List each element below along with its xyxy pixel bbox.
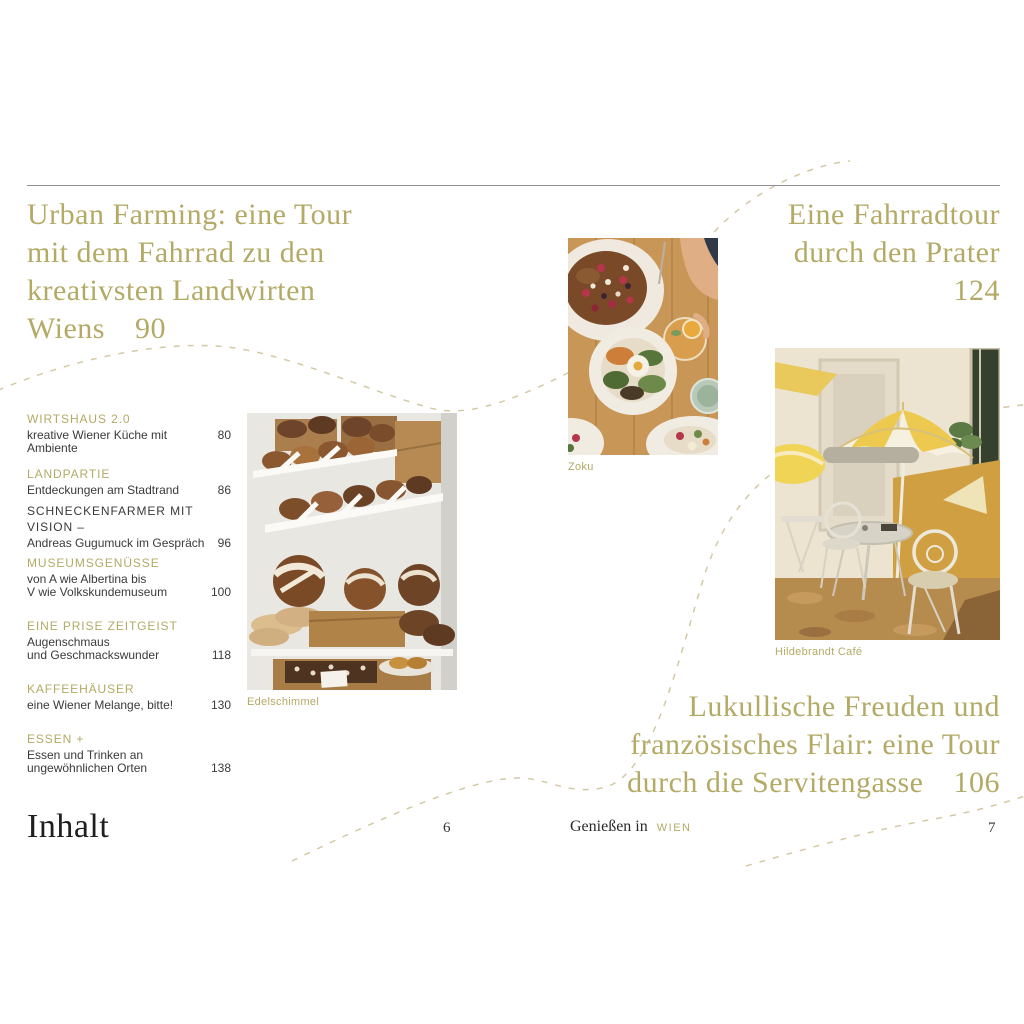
toc-entry: LANDPARTIEEntdeckungen am Stadtrand86	[27, 466, 231, 497]
headline-servitengasse: Lukullische Freuden undfranzösisches Fla…	[627, 688, 1000, 802]
headline-line: durch die Servitengasse106	[627, 764, 1000, 802]
toc-page-number: 86	[218, 484, 231, 497]
headline-page-number: 106	[954, 766, 1001, 799]
flourish-bottom-curve	[746, 791, 1024, 866]
cafe-terrace-image	[775, 348, 1000, 640]
toc-entry-title: ESSEN +	[27, 731, 231, 747]
toc-entry: SCHNECKENFARMER MIT VISION –Andreas Gugu…	[27, 503, 231, 550]
running-title-text: Genießen in	[570, 818, 648, 836]
toc-entry-line: Andreas Gugumuck im Gespräch96	[27, 537, 231, 550]
toc-entry-line: kreative Wiener Küche mit Ambiente80	[27, 429, 231, 455]
toc-entry-title: MUSEUMSGENÜSSE	[27, 555, 231, 571]
running-title: Genießen in WIEN	[570, 818, 691, 836]
headline-line: Eine Fahrradtour	[788, 196, 1000, 234]
headline-fahrradtour-prater: Eine Fahrradtourdurch den Prater124	[788, 196, 1000, 310]
caption-hildebrandt: Hildebrandt Café	[775, 646, 1000, 658]
toc-page-number: 118	[212, 649, 231, 662]
toc-entry-title: WIRTSHAUS 2.0	[27, 411, 231, 427]
toc-page-number: 96	[218, 537, 231, 550]
toc-entry-title: EINE PRISE ZEITGEIST	[27, 618, 231, 634]
caption-edelschimmel: Edelschimmel	[247, 696, 457, 708]
bakery-shelves-image	[247, 413, 457, 690]
toc-page-number: 130	[211, 699, 231, 712]
toc-entry-line: und Geschmackswunder118	[27, 649, 231, 662]
toc-entry: MUSEUMSGENÜSSEvon A wie Albertina bisV w…	[27, 555, 231, 599]
page-number-right: 7	[988, 820, 996, 837]
headline-line: durch den Prater	[788, 234, 1000, 272]
toc-entry-title: LANDPARTIE	[27, 466, 231, 482]
toc-entry: ESSEN +Essen und Trinken anungewöhnliche…	[27, 731, 231, 775]
toc-list: WIRTSHAUS 2.0kreative Wiener Küche mit A…	[27, 0, 231, 1024]
toc-entry-line: Entdeckungen am Stadtrand86	[27, 484, 231, 497]
toc-entry-title: KAFFEEHÄUSER	[27, 681, 231, 697]
toc-entry-line: ungewöhnlichen Orten138	[27, 762, 231, 775]
toc-entry-title: SCHNECKENFARMER MIT VISION –	[27, 503, 231, 535]
toc-entry: EINE PRISE ZEITGEISTAugenschmausund Gesc…	[27, 618, 231, 662]
headline-page-number: 124	[788, 272, 1000, 310]
toc-entry-line: V wie Volkskundemuseum100	[27, 586, 231, 599]
headline-line: Lukullische Freuden und	[627, 688, 1000, 726]
toc-page-number: 100	[211, 586, 231, 599]
zoku-food-table-image	[568, 238, 718, 455]
toc-entry-line: eine Wiener Melange, bitte!130	[27, 699, 231, 712]
page-number-left: 6	[443, 820, 451, 837]
caption-zoku: Zoku	[568, 461, 718, 473]
headline-line: französisches Flair: eine Tour	[627, 726, 1000, 764]
book-contents-spread: Urban Farming: eine Tourmit dem Fahrrad …	[0, 0, 1024, 1024]
photo-edelschimmel: Edelschimmel	[247, 413, 457, 708]
toc-entry: KAFFEEHÄUSEReine Wiener Melange, bitte!1…	[27, 681, 231, 712]
toc-page-number: 80	[218, 429, 231, 455]
contents-title: Inhalt	[27, 808, 109, 846]
photo-zoku: Zoku	[568, 238, 718, 473]
running-title-accent: WIEN	[657, 822, 692, 834]
toc-page-number: 138	[211, 762, 231, 775]
toc-entry: WIRTSHAUS 2.0kreative Wiener Küche mit A…	[27, 411, 231, 455]
photo-hildebrandt-cafe: Hildebrandt Café	[775, 348, 1000, 658]
